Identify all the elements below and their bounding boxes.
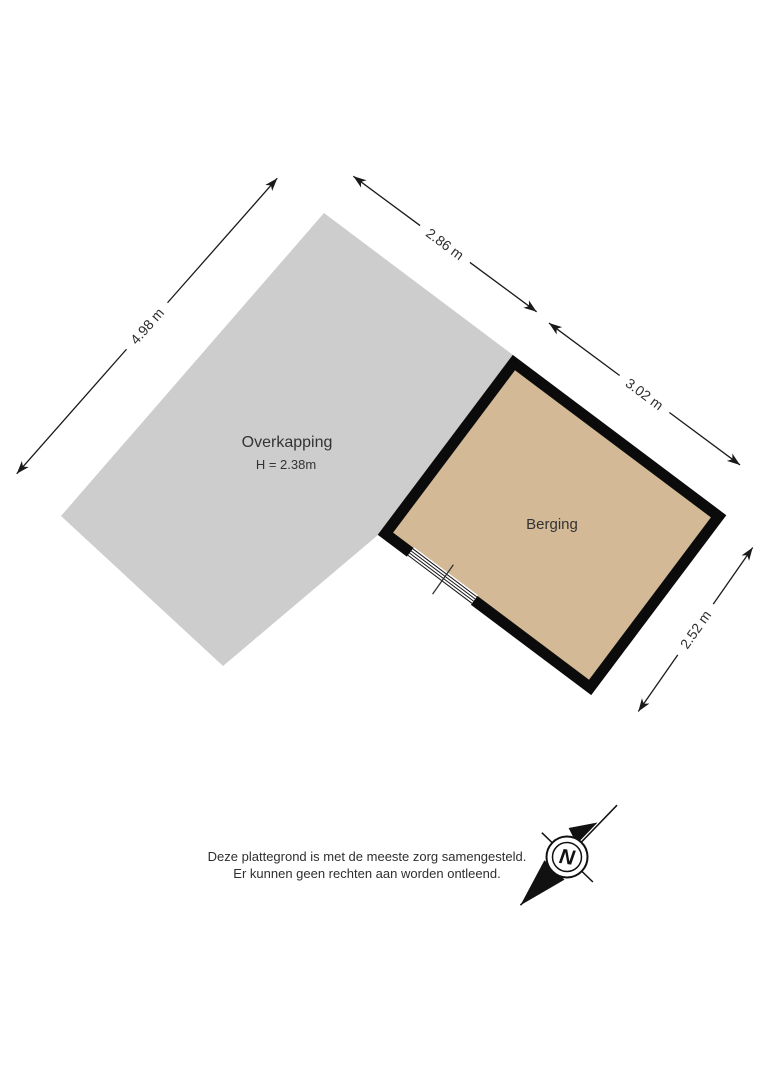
overkapping-label: Overkapping bbox=[242, 434, 333, 451]
disclaimer-line2: Er kunnen geen rechten aan worden ontlee… bbox=[233, 866, 500, 881]
overkapping-height-label: H = 2.38m bbox=[256, 457, 316, 472]
dimension-line bbox=[17, 349, 127, 474]
dimension-label: 2.52 m bbox=[677, 607, 715, 651]
dimension-line bbox=[669, 412, 740, 464]
dimension-line bbox=[713, 547, 752, 604]
overkapping-area: Overkapping H = 2.38m bbox=[61, 213, 513, 666]
dimension-line bbox=[470, 262, 537, 311]
arrowhead-icon bbox=[351, 172, 367, 187]
berging-label: Berging bbox=[526, 516, 578, 533]
floorplan-canvas: Overkapping H = 2.38m Berging 4 bbox=[0, 0, 768, 1086]
arrowhead-icon bbox=[742, 545, 757, 561]
disclaimer: Deze plattegrond is met de meeste zorg s… bbox=[208, 849, 527, 881]
dimension-label: 4.98 m bbox=[127, 305, 167, 348]
dimension-line bbox=[549, 323, 620, 375]
arrowhead-icon bbox=[727, 454, 743, 469]
dimension-line bbox=[638, 655, 677, 712]
dimension-line bbox=[168, 178, 278, 303]
dimension-line bbox=[353, 176, 420, 225]
dimension-label: 3.02 m bbox=[623, 375, 667, 413]
arrowhead-icon bbox=[546, 319, 562, 334]
dimension-label: 2.86 m bbox=[423, 225, 467, 263]
arrowhead-icon bbox=[635, 698, 650, 714]
arrowhead-icon bbox=[523, 300, 539, 315]
disclaimer-line1: Deze plattegrond is met de meeste zorg s… bbox=[208, 849, 527, 864]
floorplan-page: Overkapping H = 2.38m Berging 4 bbox=[0, 0, 768, 1086]
